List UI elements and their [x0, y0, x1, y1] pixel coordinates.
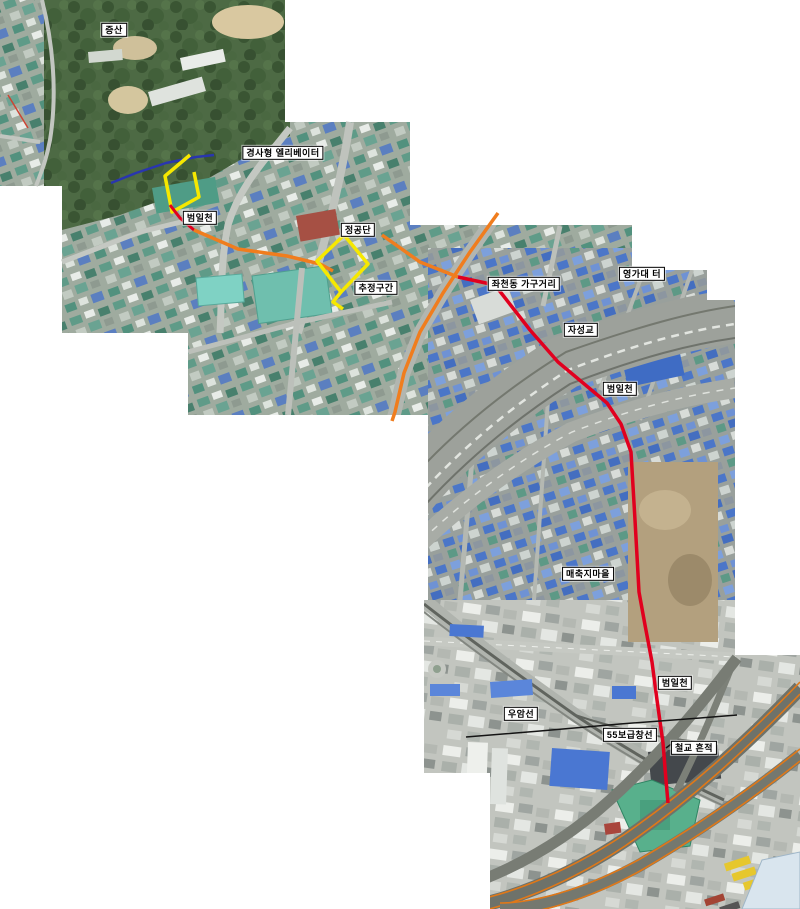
label-beomilcheon-upper: 범일천 — [183, 211, 217, 225]
demolition-rubble — [668, 554, 712, 606]
sand-field — [108, 86, 148, 114]
label-maechukji-village: 매축지마을 — [562, 567, 614, 581]
red-roof-annex — [604, 822, 621, 835]
label-rail-bridge-trace: 철교 흔적 — [671, 741, 717, 755]
label-supply-depot-55-line: 55보급창선 — [603, 728, 657, 742]
sports-field — [252, 266, 332, 324]
aerial-map-canvas — [0, 0, 800, 909]
label-jeonggongdan: 정공단 — [341, 223, 375, 237]
label-yeonggadae-site: 영가대 터 — [619, 267, 665, 281]
white-warehouse — [466, 742, 488, 805]
tile-hill-left-city — [0, 0, 44, 186]
label-jaseong-bridge: 자성교 — [564, 323, 598, 337]
blue-warehouse — [449, 624, 484, 638]
label-beomilcheon-lower: 범일천 — [658, 676, 692, 690]
blue-warehouse — [612, 686, 636, 699]
label-jeungsan: 증산 — [101, 23, 127, 37]
blue-warehouse — [430, 684, 460, 696]
label-beomilcheon-middle: 범일천 — [603, 382, 637, 396]
white-warehouse — [490, 748, 508, 805]
swimming-pool — [196, 274, 244, 306]
label-jwacheon-furniture: 좌천동 가구거리 — [488, 277, 560, 291]
sand-field — [212, 5, 284, 39]
demolition-rubble — [639, 490, 691, 530]
label-estimated-section: 추정구간 — [354, 281, 397, 295]
aerial-map-collage: 증산 경사형 엘리베이터 범일천 정공단 추정구간 좌천동 가구거리 영가대 터… — [0, 0, 800, 909]
roundabout-island — [433, 665, 441, 673]
blue-warehouse — [490, 679, 533, 698]
blue-warehouse — [549, 748, 610, 790]
label-uam-line: 우암선 — [504, 707, 538, 721]
label-incline-elevator: 경사형 엘리베이터 — [242, 146, 323, 160]
